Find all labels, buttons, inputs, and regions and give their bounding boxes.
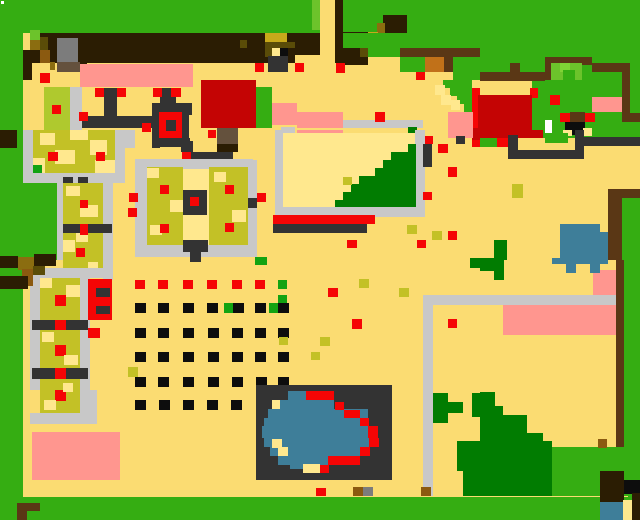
map-tile-trunk-brown	[40, 50, 50, 63]
map-tile-light-green	[30, 30, 40, 40]
map-tile-pink	[272, 103, 297, 125]
map-tile-light-gray-road	[424, 295, 616, 305]
game-map[interactable]	[0, 0, 640, 520]
map-tile-dark-gray	[248, 198, 257, 208]
map-tile-red	[128, 208, 137, 217]
map-tile-pink	[592, 97, 622, 112]
map-tile-dark-red-building	[478, 95, 532, 130]
map-tile-grass-green	[443, 80, 472, 88]
map-tile-dark-brown	[0, 276, 28, 289]
map-tile-dark-brown	[40, 33, 295, 63]
map-tile-red	[225, 223, 234, 232]
map-tile-red	[335, 402, 344, 410]
map-tile-fence-brown	[400, 48, 480, 57]
map-tile-pale-yellow	[623, 500, 632, 520]
map-tile-red	[225, 185, 234, 194]
map-tile-black	[231, 400, 242, 410]
map-tile-black	[183, 377, 194, 387]
map-tile-red	[160, 185, 169, 194]
map-tile-red	[416, 72, 425, 80]
map-tile-red	[336, 63, 345, 73]
map-tile-grass-green	[256, 87, 272, 128]
map-tile-dark-gray	[181, 141, 193, 152]
map-tile-steel-blue-water	[274, 400, 334, 409]
map-tile-light-gray-road	[80, 390, 97, 413]
map-tile-red	[208, 130, 216, 138]
map-tile-black	[278, 352, 289, 362]
map-tile-tree-dark-green	[457, 441, 552, 471]
map-tile-red	[55, 295, 66, 306]
map-tile-fence-brown	[622, 113, 640, 122]
map-tile-pale-yellow	[42, 332, 54, 342]
map-tile-grass-green	[400, 57, 425, 72]
map-tile-fence-brown	[608, 189, 640, 198]
map-tile-black	[159, 400, 170, 410]
map-tile-tree-dark-green	[359, 176, 416, 184]
map-tile-olive-plot	[343, 177, 352, 185]
map-tile-tree-dark-green	[480, 433, 543, 441]
map-tile-dark-brown	[23, 50, 40, 63]
map-tile-dark-brown	[295, 33, 320, 55]
map-tile-green-crop-dot	[269, 303, 278, 313]
map-tile-green-crop-dot	[278, 280, 287, 289]
map-tile-red	[255, 280, 265, 289]
map-tile-red	[328, 456, 360, 465]
map-tile-sand	[320, 0, 335, 33]
map-tile-red	[153, 88, 162, 97]
map-tile-light-gray-road	[23, 173, 125, 183]
map-tile-light-gray-road	[423, 295, 433, 496]
map-tile-red	[316, 488, 326, 496]
map-tile-red	[52, 105, 61, 114]
map-tile-fence-brown	[17, 511, 27, 520]
map-tile-dark-gray	[268, 56, 288, 72]
map-tile-light-green	[312, 0, 320, 30]
map-tile-olive-plot	[432, 231, 442, 240]
map-tile-red	[585, 113, 595, 122]
map-tile-black	[183, 400, 194, 410]
map-tile-black	[135, 352, 146, 362]
map-tile-red	[347, 240, 357, 248]
map-tile-black	[255, 303, 266, 313]
map-tile-tree-dark-green	[494, 240, 507, 260]
map-tile-tree-dark-green	[383, 160, 416, 168]
map-tile-black	[135, 328, 146, 338]
map-tile-black	[135, 377, 146, 387]
map-tile-pink	[503, 305, 616, 335]
map-tile-steel-blue-water	[600, 502, 623, 520]
map-tile-red	[129, 193, 138, 202]
map-tile-dark-gray	[104, 88, 117, 116]
map-tile-tree-dark-green	[472, 393, 480, 417]
map-tile-red	[423, 192, 432, 200]
map-tile-red	[448, 231, 457, 240]
map-tile-pale-yellow	[303, 464, 320, 473]
map-tile-red	[550, 95, 560, 105]
map-tile-dark-gray	[96, 306, 110, 314]
map-tile-pink	[320, 112, 343, 125]
map-tile-steel-blue-water	[566, 264, 576, 273]
map-tile-caramel	[425, 57, 444, 72]
map-tile-red	[344, 410, 360, 418]
map-tile-red	[80, 224, 88, 233]
map-tile-pale-yellow	[66, 285, 80, 297]
map-tile-olive-plot	[512, 184, 523, 198]
map-tile-fence-brown	[480, 72, 545, 81]
map-tile-dark-gray	[152, 139, 160, 148]
map-tile-olive-plot	[407, 225, 417, 234]
map-tile-green-crop-dot	[224, 303, 233, 313]
map-tile-white	[1, 1, 4, 4]
map-tile-tree-dark-green	[480, 406, 503, 415]
map-tile-steel-blue-water	[262, 426, 372, 438]
map-tile-grass-green	[563, 70, 575, 80]
map-tile-dark-olive	[33, 266, 45, 275]
map-tile-black	[232, 352, 243, 362]
map-tile-light-gray-road	[30, 413, 97, 424]
map-tile-pale-yellow	[55, 150, 75, 164]
map-tile-pale-yellow	[95, 160, 115, 173]
map-tile-red	[135, 280, 145, 289]
map-tile-red	[255, 63, 264, 72]
map-tile-pale-yellow	[583, 128, 592, 136]
map-tile-grass-green	[464, 104, 472, 112]
map-tile-gold-brown	[50, 62, 55, 70]
map-tile-red	[183, 280, 193, 289]
map-tile-olive-plot	[279, 337, 288, 345]
map-tile-red	[190, 197, 199, 206]
map-tile-black	[208, 328, 219, 338]
map-tile-pink	[593, 270, 616, 295]
map-tile-black	[278, 303, 289, 313]
map-tile-pale-yellow	[147, 168, 159, 178]
map-tile-red	[76, 248, 85, 257]
map-tile-black	[135, 303, 146, 313]
map-tile-mid-gray	[57, 38, 78, 62]
map-tile-gold-brown	[30, 40, 40, 50]
map-tile-red	[497, 138, 508, 147]
map-tile-fence-brown	[608, 198, 622, 260]
map-tile-dark-gray	[423, 144, 432, 167]
map-tile-red	[368, 426, 378, 438]
map-tile-red	[48, 152, 58, 161]
map-tile-red	[117, 88, 126, 97]
map-tile-pale-yellow	[451, 100, 460, 110]
map-tile-tree-dark-green	[480, 392, 495, 406]
map-tile-dark-gray	[190, 252, 201, 262]
map-tile-mid-gray	[363, 487, 373, 496]
map-tile-grass-green	[622, 198, 640, 471]
map-tile-steel-blue-water	[560, 224, 600, 264]
map-tile-red	[320, 465, 329, 473]
map-tile-pale-yellow	[214, 172, 226, 182]
map-tile-red	[40, 73, 50, 83]
map-tile-pale-yellow	[66, 186, 80, 196]
map-tile-light-gray-road	[40, 268, 110, 278]
map-tile-pale-yellow	[278, 447, 288, 456]
map-tile-red	[425, 136, 433, 144]
map-tile-tree-dark-green	[463, 471, 552, 496]
map-tile-dark-brown	[335, 0, 343, 63]
map-tile-gold-brown	[377, 23, 385, 33]
map-tile-green-crop-dot	[255, 257, 267, 265]
map-tile-red	[142, 123, 151, 132]
map-tile-black	[255, 328, 266, 338]
map-tile-pale-yellow	[70, 130, 88, 140]
map-tile-dark-brown	[34, 254, 56, 266]
map-tile-red	[560, 113, 570, 122]
map-tile-steel-blue-water	[264, 418, 369, 426]
map-tile-black	[208, 377, 219, 387]
map-tile-steel-blue-water	[590, 264, 600, 273]
map-tile-tree-dark-green	[375, 168, 416, 176]
map-tile-dark-brown	[600, 471, 624, 502]
map-tile-black	[183, 352, 194, 362]
map-tile-red	[360, 418, 369, 426]
map-tile-red	[472, 140, 480, 147]
map-tile-red	[158, 280, 168, 289]
map-tile-fence-brown	[510, 63, 520, 72]
map-tile-black	[255, 352, 266, 362]
map-tile-dark-olive	[40, 37, 48, 50]
map-tile-red	[306, 391, 334, 400]
map-tile-grass-green	[545, 133, 568, 143]
map-tile-dark-gray	[456, 136, 465, 144]
map-tile-red	[369, 438, 379, 447]
map-tile-red	[207, 280, 217, 289]
map-tile-pale-yellow	[272, 400, 280, 409]
map-tile-grass-green	[23, 183, 57, 260]
map-tile-red	[79, 112, 88, 121]
map-tile-dark-gray	[508, 150, 583, 159]
map-tile-red	[55, 368, 66, 379]
map-tile-pale-yellow	[40, 133, 55, 145]
map-tile-red	[171, 88, 181, 97]
map-tile-black	[135, 400, 146, 410]
map-tile-olive-plot	[311, 352, 320, 360]
map-tile-tree-dark-green	[433, 393, 448, 423]
map-tile-tree-dark-green	[351, 184, 416, 192]
map-tile-pale-yellow	[170, 200, 183, 212]
map-tile-dark-brown	[0, 256, 18, 268]
map-tile-dark-gray	[583, 137, 640, 146]
map-tile-tree-dark-green	[480, 415, 527, 433]
map-tile-olive-plot	[128, 367, 138, 377]
map-tile-red	[328, 288, 338, 297]
map-tile-tree-dark-green	[494, 270, 504, 280]
map-tile-red	[360, 447, 370, 456]
map-tile-pale-yellow	[63, 383, 73, 392]
map-tile-fence-brown	[570, 112, 585, 122]
map-tile-dark-olive	[240, 40, 247, 48]
map-tile-red	[438, 144, 448, 153]
map-tile-red	[55, 320, 66, 330]
map-tile-black	[158, 303, 169, 313]
map-tile-pink	[448, 112, 473, 138]
map-tile-black	[158, 352, 169, 362]
map-tile-steel-blue-water	[552, 258, 560, 264]
map-tile-light-gray-road	[125, 130, 135, 148]
map-tile-grass-green	[480, 138, 497, 147]
map-tile-black	[183, 303, 194, 313]
map-tile-steel-blue-water	[600, 232, 608, 264]
map-tile-dark-gray	[273, 224, 367, 233]
map-tile-dark-brown	[632, 493, 640, 520]
map-tile-pale-yellow	[64, 355, 78, 365]
map-tile-black	[183, 328, 194, 338]
map-tile-red	[448, 167, 457, 177]
map-tile-light-gray-road	[248, 160, 257, 257]
map-tile-dark-red-building	[201, 80, 256, 128]
map-tile-dark-brown	[23, 63, 32, 80]
map-tile-trunk-brown	[353, 487, 363, 496]
map-tile-olive-plot	[320, 337, 330, 346]
map-tile-light-gray-road	[275, 130, 283, 208]
map-tile-dark-gray	[166, 120, 176, 131]
map-tile-black	[232, 377, 243, 387]
map-tile-pink	[32, 432, 120, 480]
map-tile-black	[232, 328, 243, 338]
map-tile-pale-yellow	[232, 210, 246, 222]
map-tile-pale-yellow	[44, 400, 56, 410]
map-tile-gray-brown	[217, 128, 238, 144]
map-tile-red	[352, 319, 362, 329]
map-tile-pale-yellow	[63, 240, 75, 252]
map-tile-grass-green	[593, 130, 622, 137]
map-tile-black	[158, 328, 169, 338]
map-tile-black	[208, 352, 219, 362]
map-tile-black	[624, 480, 640, 494]
map-tile-grass-green	[368, 48, 400, 57]
map-tile-olive-plot	[399, 288, 409, 297]
map-tile-tree-dark-green	[448, 402, 463, 413]
map-tile-red	[375, 112, 385, 122]
map-tile-gray-brown	[57, 62, 80, 72]
map-tile-dark-brown	[0, 130, 17, 148]
map-tile-red	[80, 200, 88, 208]
map-tile-sand	[628, 146, 640, 189]
map-tile-black	[233, 303, 244, 313]
map-tile-pink	[80, 64, 193, 87]
map-tile-red	[417, 240, 426, 248]
map-tile-tree-dark-green	[343, 192, 416, 200]
map-tile-light-gray-road	[70, 87, 82, 130]
map-tile-dark-brown	[217, 144, 238, 152]
map-tile-red	[257, 193, 266, 202]
map-tile-pale-yellow	[435, 85, 445, 95]
map-tile-green-crop-dot	[33, 165, 42, 173]
map-tile-red	[232, 280, 242, 289]
map-tile-black	[207, 303, 218, 313]
map-tile-black	[207, 400, 218, 410]
map-tile-red	[448, 319, 457, 328]
map-tile-red	[160, 224, 169, 233]
map-tile-red	[88, 328, 100, 338]
map-tile-red	[95, 88, 104, 97]
map-tile-grass-green	[343, 33, 640, 48]
map-tile-gold	[265, 33, 287, 42]
map-tile-fence-brown	[444, 48, 453, 72]
map-tile-pale-yellow	[441, 95, 451, 105]
map-tile-pale-yellow	[40, 278, 52, 288]
map-tile-trunk-brown	[598, 439, 607, 448]
map-tile-dark-gray	[96, 288, 110, 297]
map-tile-red	[96, 152, 105, 161]
map-tile-tree-dark-green	[408, 144, 416, 152]
map-tile-grass-green	[450, 88, 472, 96]
map-tile-dark-gray	[183, 240, 208, 252]
map-tile-trunk-brown	[421, 487, 431, 496]
map-tile-red	[273, 215, 375, 224]
map-tile-olive-plot	[359, 279, 369, 288]
map-tile-fence-brown	[17, 503, 40, 511]
map-tile-red	[295, 63, 304, 72]
map-tile-tree-dark-green	[335, 200, 416, 207]
map-tile-tree-dark-green	[391, 152, 416, 160]
map-tile-grass-green	[552, 447, 640, 471]
map-tile-fence-brown	[616, 260, 624, 447]
map-tile-black	[158, 377, 169, 387]
